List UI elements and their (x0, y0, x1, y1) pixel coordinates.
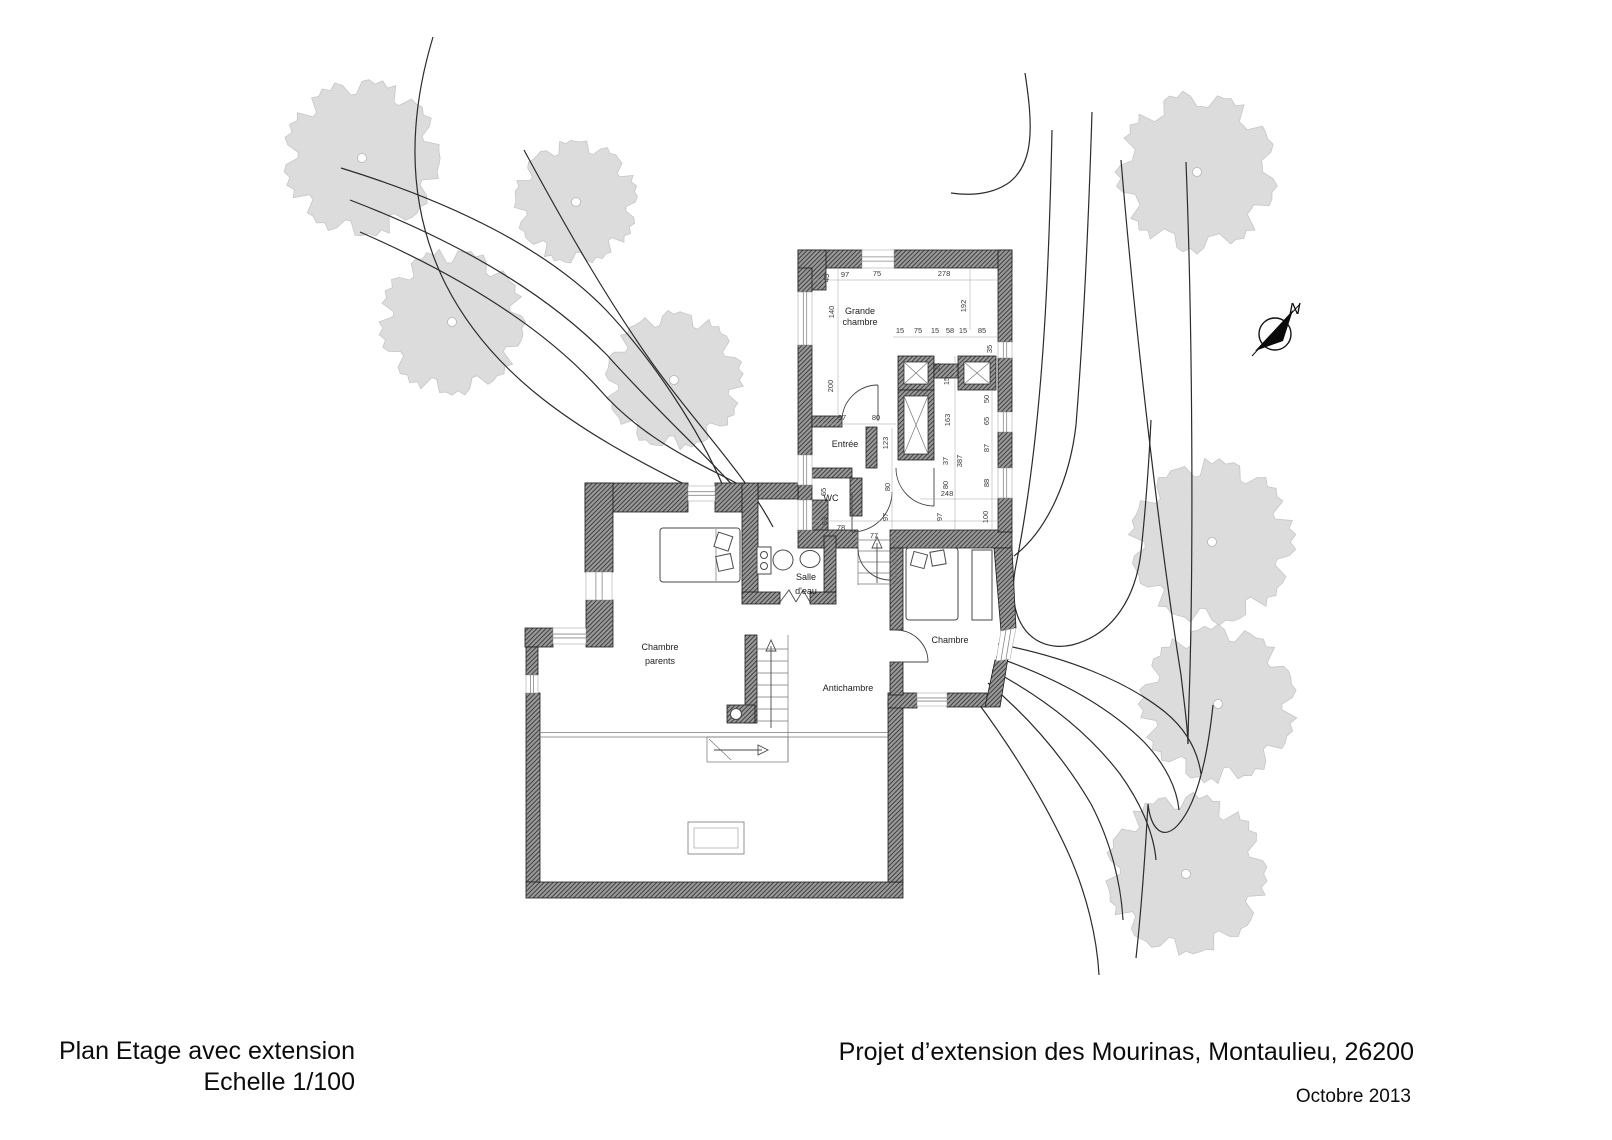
room-label: d'eau (795, 586, 817, 596)
dimension-label: 97 (881, 513, 890, 521)
dimension-label: 140 (827, 306, 836, 319)
room-label: chambre (842, 317, 877, 327)
tree-trunk-dot (572, 198, 581, 207)
dimension-label: 97 (841, 270, 849, 279)
dimension-label: 87 (982, 444, 991, 452)
window-symbol (688, 486, 715, 501)
dimension-label: 15 (931, 326, 939, 335)
dimension-label: 75 (914, 326, 922, 335)
dimension-label: 58 (946, 326, 954, 335)
floor-plan-drawing: GrandechambreEntréeWCSalled'eauChambrepa… (0, 0, 1612, 1140)
tree-symbol (1129, 458, 1296, 625)
dimension-label: 123 (881, 437, 890, 450)
window-symbol (996, 628, 1016, 661)
terrain-contour-line (988, 683, 1123, 920)
dimension-label: 85 (978, 326, 986, 335)
window-symbol (998, 342, 1012, 358)
room-label: Chambre (641, 642, 678, 652)
window-symbol (553, 628, 586, 644)
tree-symbol (379, 249, 526, 395)
dimension-label: 88 (982, 479, 991, 487)
room-label: parents (645, 656, 676, 666)
dimension-label: 80 (872, 413, 880, 422)
tree-symbol (284, 80, 440, 236)
tree-trunk-dot (670, 376, 679, 385)
dimension-label: 75 (873, 269, 881, 278)
dimension-label: 192 (959, 300, 968, 313)
bed-parents (660, 528, 740, 582)
tree-trunk-dot (1193, 168, 1202, 177)
dimension-label: 35 (985, 345, 994, 353)
dimension-label: 278 (938, 269, 951, 278)
dimension-label: 50 (982, 395, 991, 403)
room-label: Salle (796, 572, 816, 582)
dimension-label: 97 (838, 413, 846, 422)
dimension-label: 97 (935, 513, 944, 521)
floor-plan-sheet: GrandechambreEntréeWCSalled'eauChambrepa… (0, 0, 1612, 1140)
flue-closet-small-left (898, 356, 934, 390)
compass-n-label: N (1289, 301, 1301, 318)
terrain-contour-line (1013, 130, 1151, 646)
project-title: Projet d’extension des Mourinas, Montaul… (839, 1038, 1414, 1067)
drawing-date: Octobre 2013 (1296, 1086, 1411, 1108)
tree-trunk-dot (358, 154, 367, 163)
dimension-label: 43 (822, 274, 831, 282)
sink (800, 551, 820, 568)
tree-symbol (605, 311, 743, 450)
toilet (757, 547, 793, 574)
dimension-label: 25 (933, 363, 942, 371)
window-symbol (917, 693, 947, 706)
dimension-label: 387 (955, 455, 964, 468)
plan-scale: Echelle 1/100 (55, 1067, 355, 1098)
room-label: Chambre (931, 635, 968, 645)
tree-trunk-dot (448, 318, 457, 327)
dimension-label: 65 (819, 488, 828, 496)
tree-symbol (1138, 624, 1297, 784)
dimension-label: 80 (941, 481, 950, 489)
terrain-contour-line (1014, 112, 1092, 556)
room-label: Grande (845, 306, 875, 316)
tree-trunk-dot (1214, 700, 1223, 709)
window-symbol (586, 572, 612, 600)
window-symbol (798, 455, 812, 485)
bed-chambre (906, 548, 992, 620)
window-symbol (862, 250, 894, 268)
drawing-title-block: Plan Etage avec extension Echelle 1/100 (55, 1036, 355, 1098)
window-symbol (798, 500, 812, 530)
dimension-label: 15 (942, 377, 951, 385)
window-symbol (998, 468, 1012, 498)
flue-closet-tall (898, 390, 934, 460)
window-symbol (526, 675, 538, 693)
terrain-contour-line (951, 73, 1030, 194)
tree-symbol (514, 140, 637, 263)
dimension-label: 248 (941, 489, 954, 498)
dimension-label: 15 (896, 326, 904, 335)
plan-title: Plan Etage avec extension (55, 1036, 355, 1067)
tree-trunk-dot (1208, 538, 1217, 547)
north-compass: N (1252, 301, 1301, 356)
dimension-label: 80 (883, 483, 892, 491)
room-label: Entrée (832, 439, 859, 449)
stairs-lower (540, 635, 888, 762)
dimension-label: 65 (982, 417, 991, 425)
contour-lines-layer (341, 37, 1213, 975)
window-symbol (798, 292, 812, 345)
floor-opening (688, 822, 744, 854)
dimension-label: 200 (826, 380, 835, 393)
tree-trunk-dot (1182, 870, 1191, 879)
dimension-label: 77 (870, 531, 878, 540)
dimension-label: 37 (941, 457, 950, 465)
tree-symbol (1115, 91, 1277, 254)
dimension-label: 15 (959, 326, 967, 335)
dimension-label: 163 (943, 414, 952, 427)
flue-closet-small-right (958, 356, 996, 390)
terrain-contour-line (976, 700, 1099, 975)
room-label: Antichambre (823, 683, 874, 693)
window-symbol (998, 412, 1012, 432)
dimension-label: 78 (837, 523, 845, 532)
dimension-label: 83 (820, 517, 829, 525)
tree-symbol (1106, 792, 1267, 955)
dimension-label: 100 (981, 511, 990, 524)
